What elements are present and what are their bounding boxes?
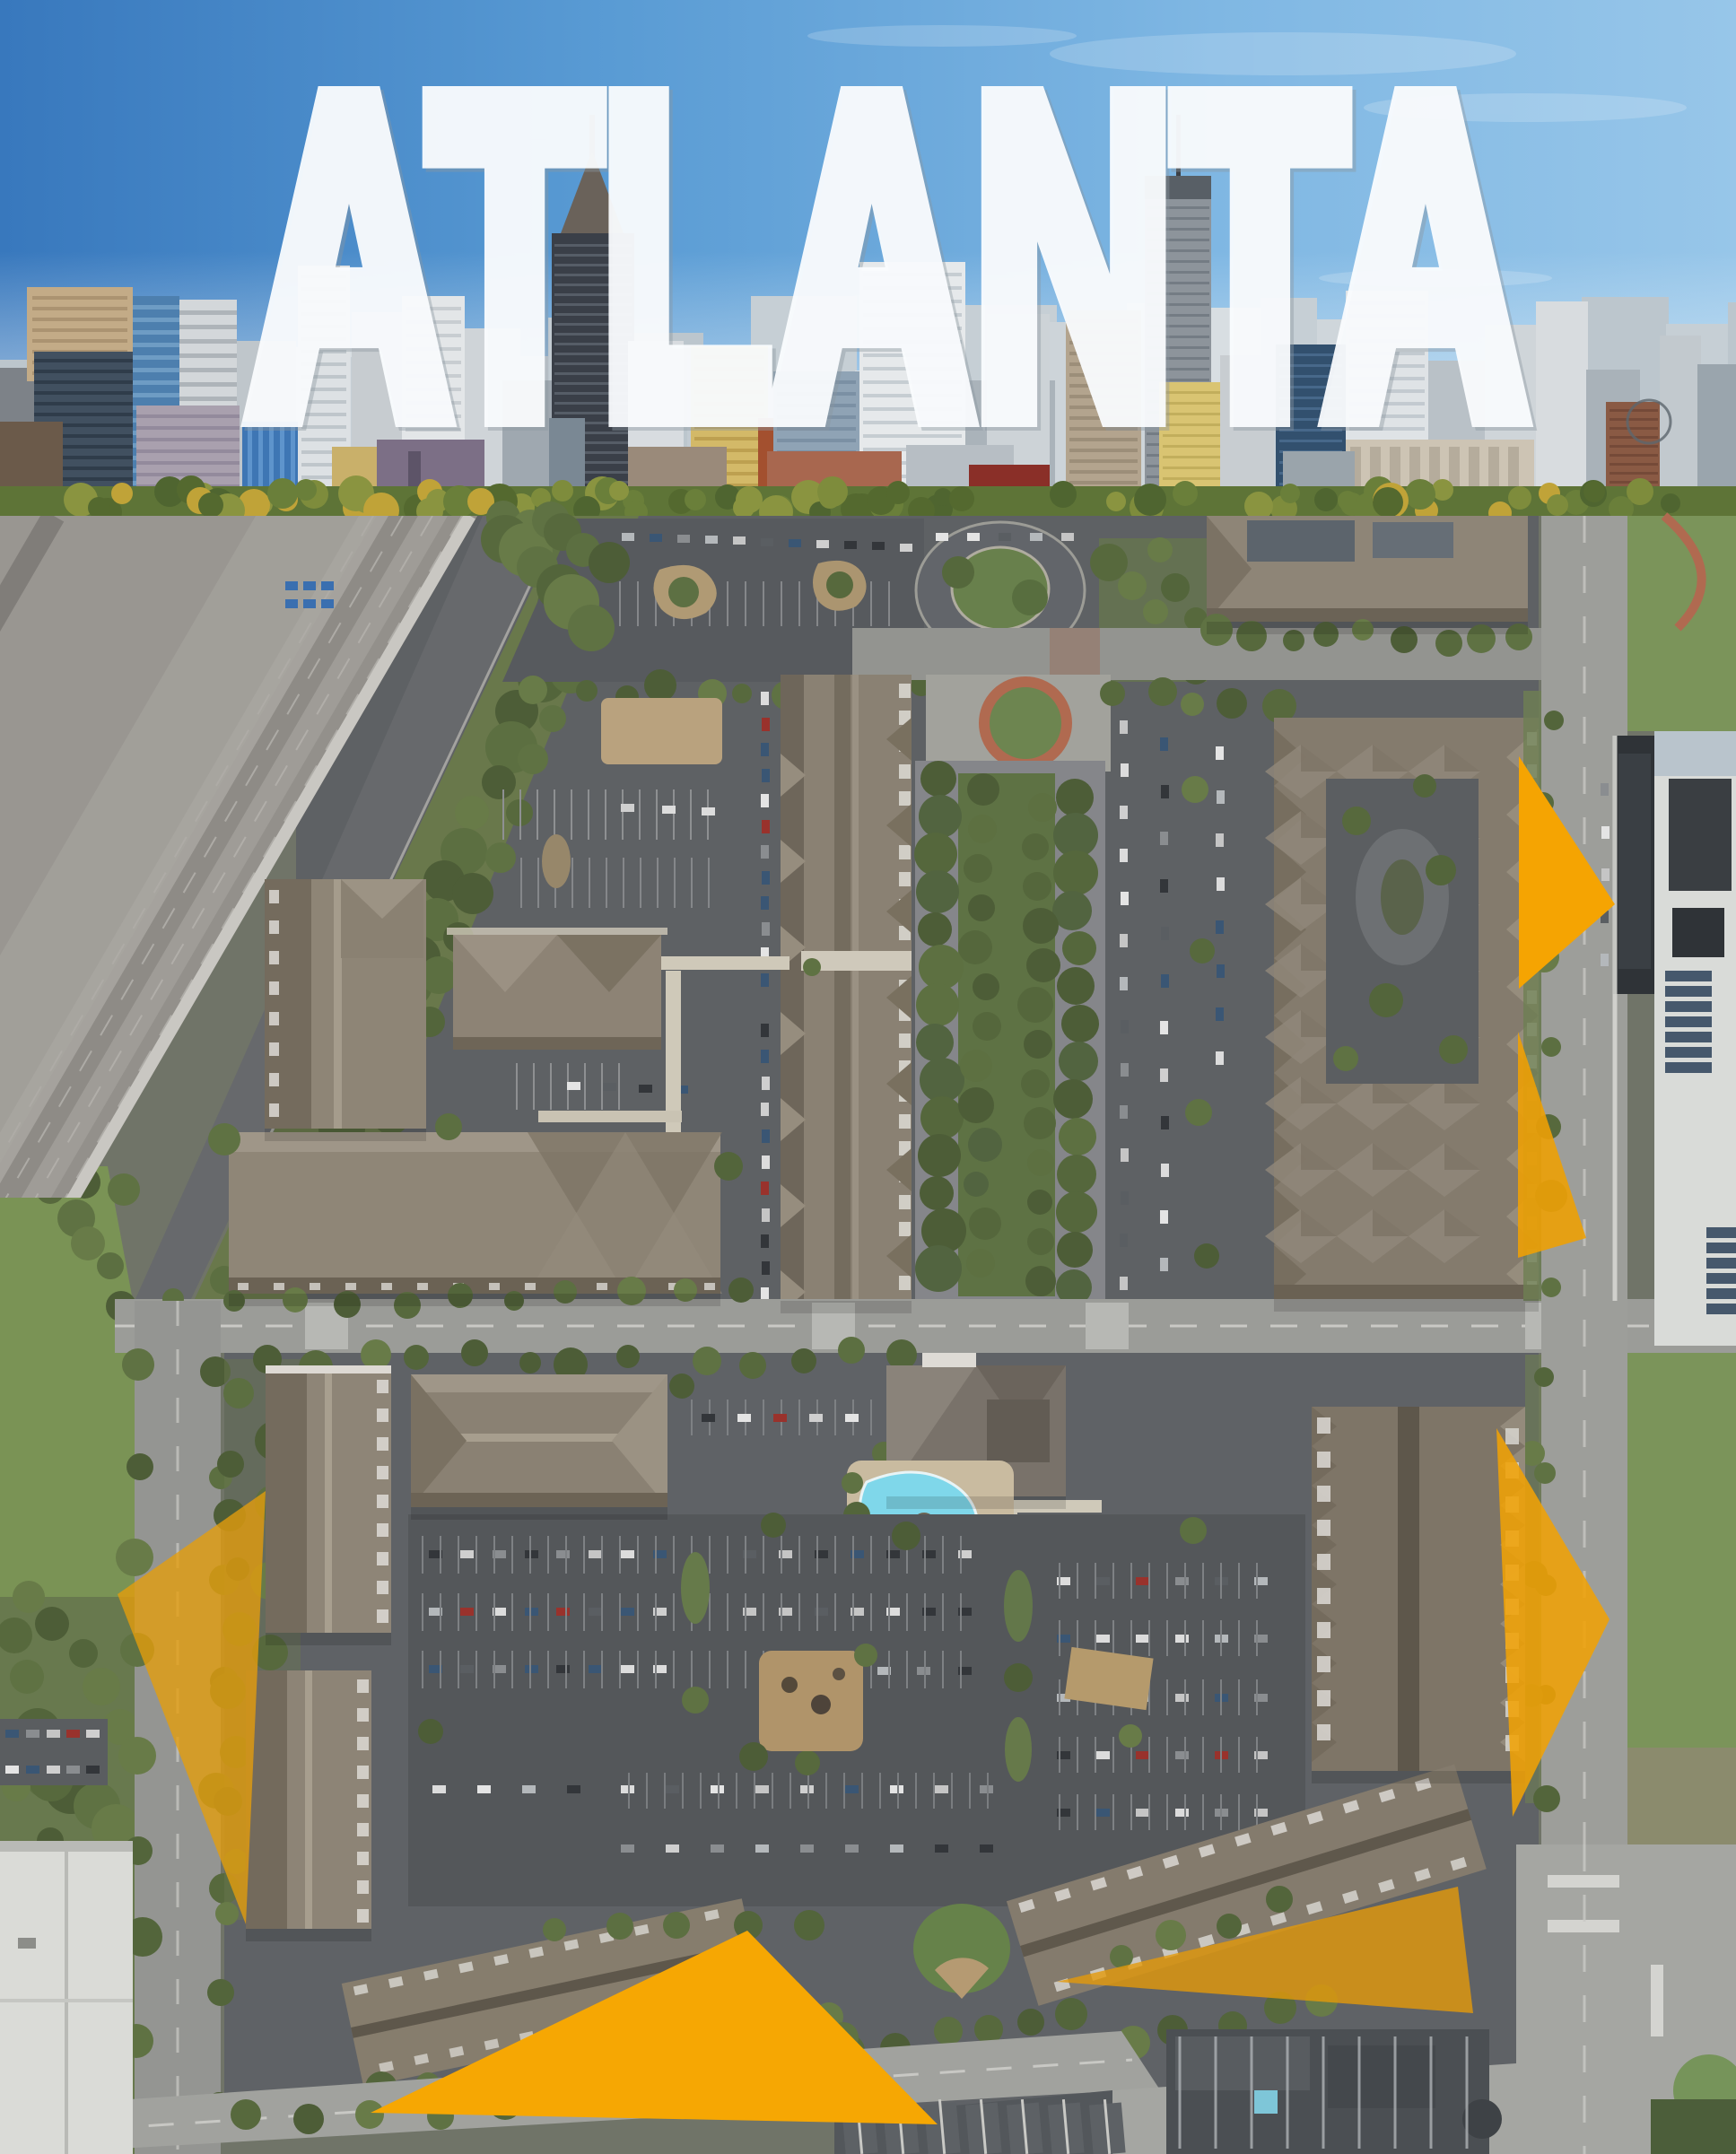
svg-text:ATLANTA: ATLANTA [249,4,1527,506]
